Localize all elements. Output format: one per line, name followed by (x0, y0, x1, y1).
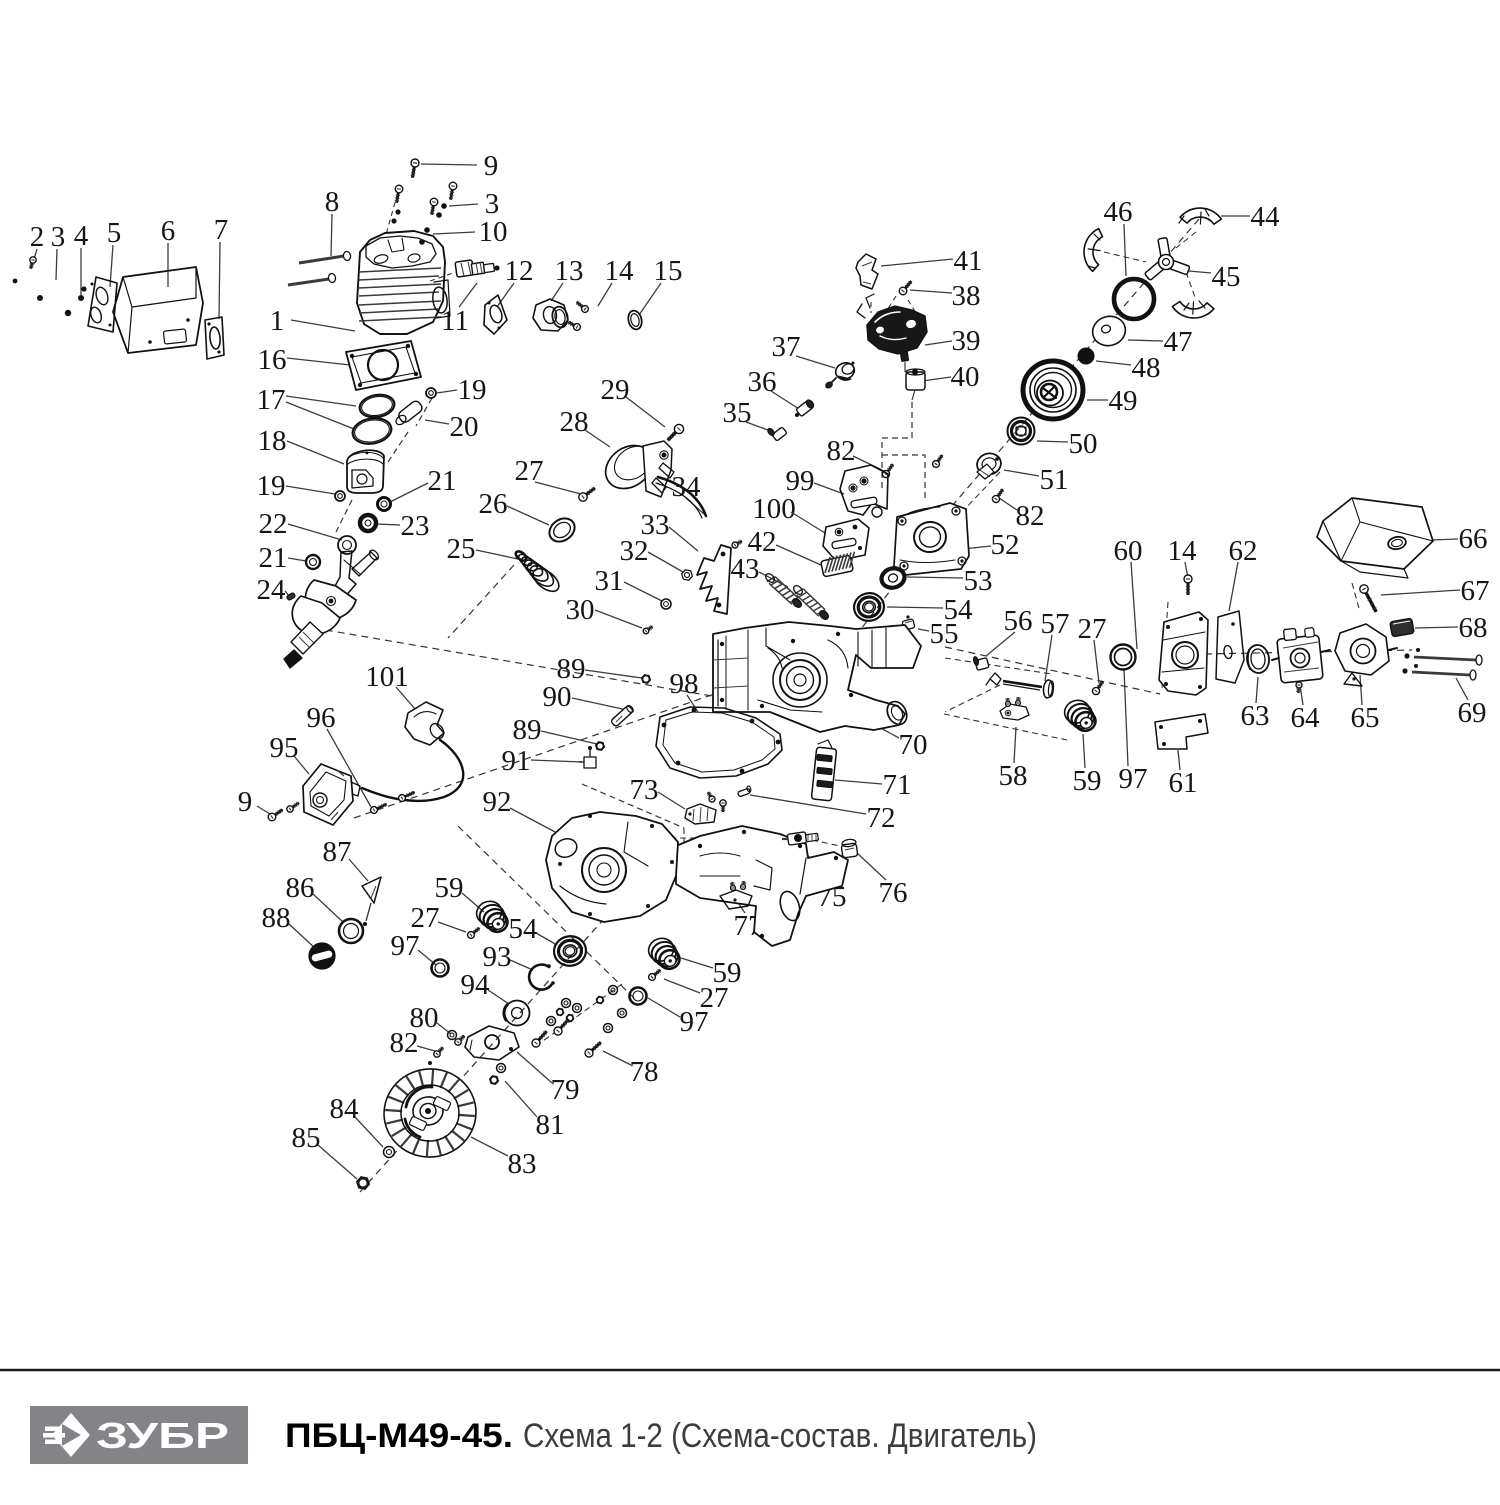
svg-text:50: 50 (1069, 428, 1098, 460)
svg-text:24: 24 (257, 574, 287, 606)
svg-text:58: 58 (999, 760, 1028, 792)
svg-text:16: 16 (258, 344, 287, 376)
svg-text:26: 26 (479, 488, 508, 520)
svg-text:64: 64 (1291, 702, 1321, 734)
svg-text:3: 3 (51, 221, 66, 253)
svg-text:70: 70 (899, 729, 928, 761)
svg-text:81: 81 (536, 1109, 565, 1141)
svg-text:61: 61 (1169, 767, 1198, 799)
svg-text:28: 28 (560, 406, 589, 438)
svg-text:45: 45 (1212, 261, 1241, 293)
svg-text:82: 82 (1016, 500, 1045, 532)
svg-text:78: 78 (630, 1056, 659, 1088)
svg-text:21: 21 (428, 465, 457, 497)
svg-text:27: 27 (1078, 613, 1107, 645)
svg-text:95: 95 (270, 732, 299, 764)
svg-text:5: 5 (107, 217, 122, 249)
svg-text:97: 97 (680, 1006, 709, 1038)
svg-text:53: 53 (964, 565, 993, 597)
svg-text:13: 13 (555, 255, 584, 287)
svg-text:27: 27 (515, 455, 544, 487)
svg-text:4: 4 (74, 220, 89, 252)
svg-text:92: 92 (483, 786, 512, 818)
svg-text:51: 51 (1040, 464, 1069, 496)
svg-text:87: 87 (323, 836, 352, 868)
svg-text:37: 37 (772, 331, 801, 363)
svg-text:69: 69 (1458, 697, 1487, 729)
svg-text:43: 43 (731, 553, 760, 585)
svg-text:57: 57 (1041, 608, 1070, 640)
svg-text:68: 68 (1459, 612, 1488, 644)
svg-text:25: 25 (447, 533, 476, 565)
svg-text:38: 38 (952, 280, 981, 312)
svg-text:40: 40 (951, 361, 980, 393)
svg-text:55: 55 (930, 618, 959, 650)
svg-text:85: 85 (292, 1122, 321, 1154)
svg-text:98: 98 (670, 668, 699, 700)
svg-text:72: 72 (867, 802, 896, 834)
svg-text:90: 90 (543, 681, 572, 713)
svg-text:29: 29 (601, 374, 630, 406)
svg-text:9: 9 (484, 150, 499, 182)
svg-text:59: 59 (1073, 765, 1102, 797)
svg-text:23: 23 (401, 510, 430, 542)
svg-text:33: 33 (641, 509, 670, 541)
svg-text:67: 67 (1461, 575, 1490, 607)
svg-text:35: 35 (723, 397, 752, 429)
svg-text:44: 44 (1251, 201, 1281, 233)
svg-text:12: 12 (505, 255, 534, 287)
svg-text:66: 66 (1459, 523, 1488, 555)
svg-text:97: 97 (1119, 763, 1148, 795)
svg-text:88: 88 (262, 902, 291, 934)
svg-text:20: 20 (450, 411, 479, 443)
svg-text:22: 22 (259, 508, 288, 540)
svg-text:46: 46 (1104, 196, 1133, 228)
svg-text:65: 65 (1351, 702, 1380, 734)
svg-text:39: 39 (952, 325, 981, 357)
svg-text:15: 15 (654, 255, 683, 287)
svg-text:7: 7 (214, 214, 229, 246)
svg-text:96: 96 (307, 702, 336, 734)
svg-text:89: 89 (513, 714, 542, 746)
svg-text:19: 19 (257, 470, 286, 502)
svg-text:14: 14 (605, 255, 635, 287)
svg-text:100: 100 (752, 493, 796, 525)
svg-text:2: 2 (30, 221, 45, 253)
svg-text:84: 84 (330, 1093, 360, 1125)
svg-text:ПБЦ-М49-45.Схема 1-2 (Схема-со: ПБЦ-М49-45.Схема 1-2 (Схема-состав. Двиг… (285, 1417, 1037, 1455)
svg-text:21: 21 (259, 542, 288, 574)
svg-text:91: 91 (502, 745, 531, 777)
svg-text:ЗУБР: ЗУБР (96, 1415, 229, 1456)
svg-text:60: 60 (1114, 535, 1143, 567)
svg-text:49: 49 (1109, 385, 1138, 417)
svg-text:1: 1 (270, 305, 285, 337)
svg-text:82: 82 (390, 1027, 419, 1059)
svg-text:82: 82 (827, 435, 856, 467)
svg-text:76: 76 (879, 877, 908, 909)
svg-text:101: 101 (365, 661, 409, 693)
svg-text:71: 71 (883, 769, 912, 801)
svg-text:97: 97 (391, 930, 420, 962)
svg-text:10: 10 (479, 216, 508, 248)
svg-text:54: 54 (509, 913, 539, 945)
svg-text:41: 41 (954, 245, 983, 277)
svg-text:36: 36 (748, 366, 777, 398)
svg-text:86: 86 (286, 872, 315, 904)
svg-text:59: 59 (435, 872, 464, 904)
svg-text:14: 14 (1168, 535, 1198, 567)
svg-text:30: 30 (566, 594, 595, 626)
svg-text:48: 48 (1132, 352, 1161, 384)
svg-text:17: 17 (257, 384, 286, 416)
svg-text:79: 79 (551, 1074, 580, 1106)
svg-text:47: 47 (1164, 326, 1193, 358)
svg-text:9: 9 (238, 786, 253, 818)
svg-text:83: 83 (508, 1148, 537, 1180)
svg-text:18: 18 (258, 425, 287, 457)
svg-text:73: 73 (630, 774, 659, 806)
svg-text:63: 63 (1241, 700, 1270, 732)
svg-text:62: 62 (1229, 535, 1258, 567)
svg-text:19: 19 (458, 374, 487, 406)
svg-text:8: 8 (325, 186, 340, 218)
svg-text:31: 31 (595, 565, 624, 597)
svg-text:94: 94 (461, 969, 491, 1001)
svg-text:52: 52 (991, 529, 1020, 561)
svg-text:6: 6 (161, 215, 176, 247)
svg-text:56: 56 (1004, 605, 1033, 637)
